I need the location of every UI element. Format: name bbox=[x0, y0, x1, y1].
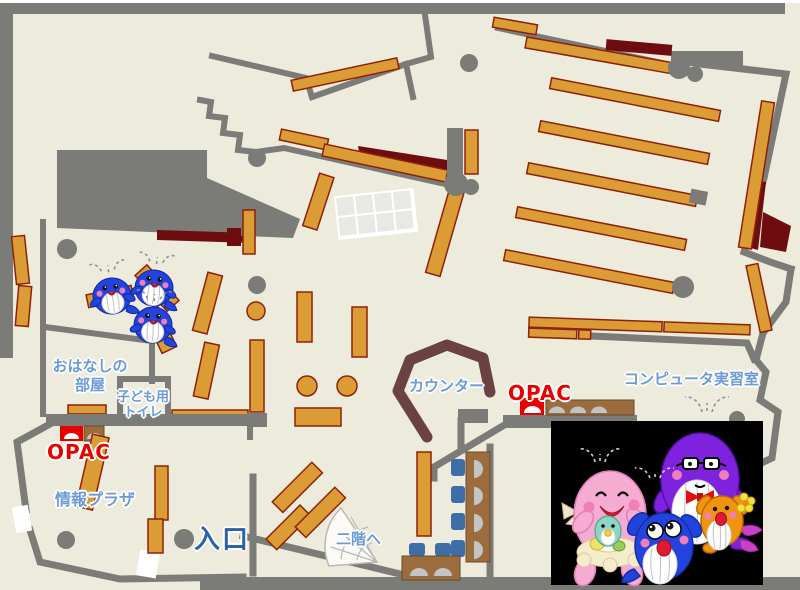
label-kids-toilet-line1: 子ども用 bbox=[112, 390, 174, 405]
round-stool bbox=[247, 302, 265, 320]
doorway-gap bbox=[136, 549, 160, 578]
mascot-photo bbox=[551, 397, 763, 589]
pacifier bbox=[605, 530, 611, 536]
round-stool bbox=[297, 376, 317, 396]
study-tables-grid bbox=[334, 188, 418, 240]
label-opac-right: OPAC bbox=[508, 381, 572, 405]
reading-room-bookshelves bbox=[504, 78, 791, 345]
label-kids-toilet-line2: トイレ bbox=[112, 405, 174, 420]
computer-carrels bbox=[402, 452, 490, 580]
library-floor-map: おはなしの 部屋 子ども用 トイレ OPAC 情報プラザ 入口 二階へ カウンタ… bbox=[0, 0, 800, 590]
label-info-plaza: 情報プラザ bbox=[55, 486, 135, 510]
round-stool bbox=[337, 376, 357, 396]
label-counter: カウンター bbox=[409, 375, 484, 396]
label-kids-toilet: 子ども用 トイレ bbox=[112, 390, 174, 420]
upper-corridor-walls bbox=[200, 15, 791, 470]
label-computer-room: コンピュータ実習室 bbox=[624, 368, 759, 389]
label-to-second-floor: 二階へ bbox=[336, 528, 381, 549]
label-entrance: 入口 bbox=[194, 519, 250, 556]
label-storytelling-line1: おはなしの bbox=[42, 357, 138, 376]
label-opac-left: OPAC bbox=[47, 440, 111, 464]
